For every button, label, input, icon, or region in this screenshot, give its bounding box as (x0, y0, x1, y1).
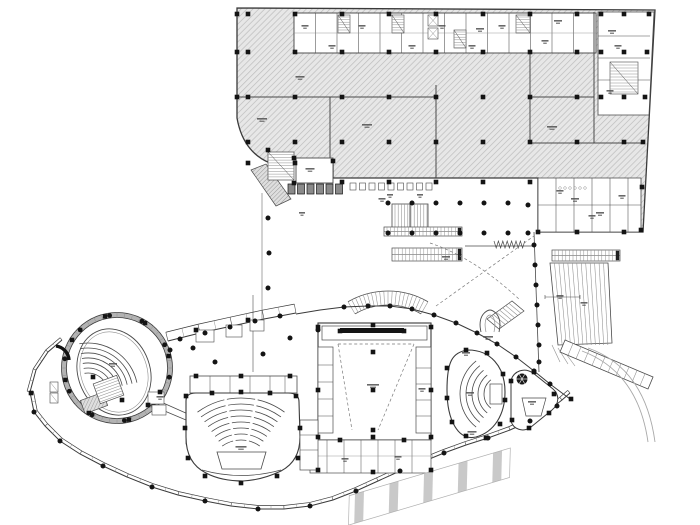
side-theater (447, 350, 505, 437)
stage-house (300, 323, 431, 473)
podium-building (237, 8, 655, 232)
floor-plan-canvas (0, 0, 700, 525)
spiral-stair-block (511, 370, 558, 430)
grand-stair-east (545, 263, 655, 442)
floor-plan-page (0, 0, 700, 525)
